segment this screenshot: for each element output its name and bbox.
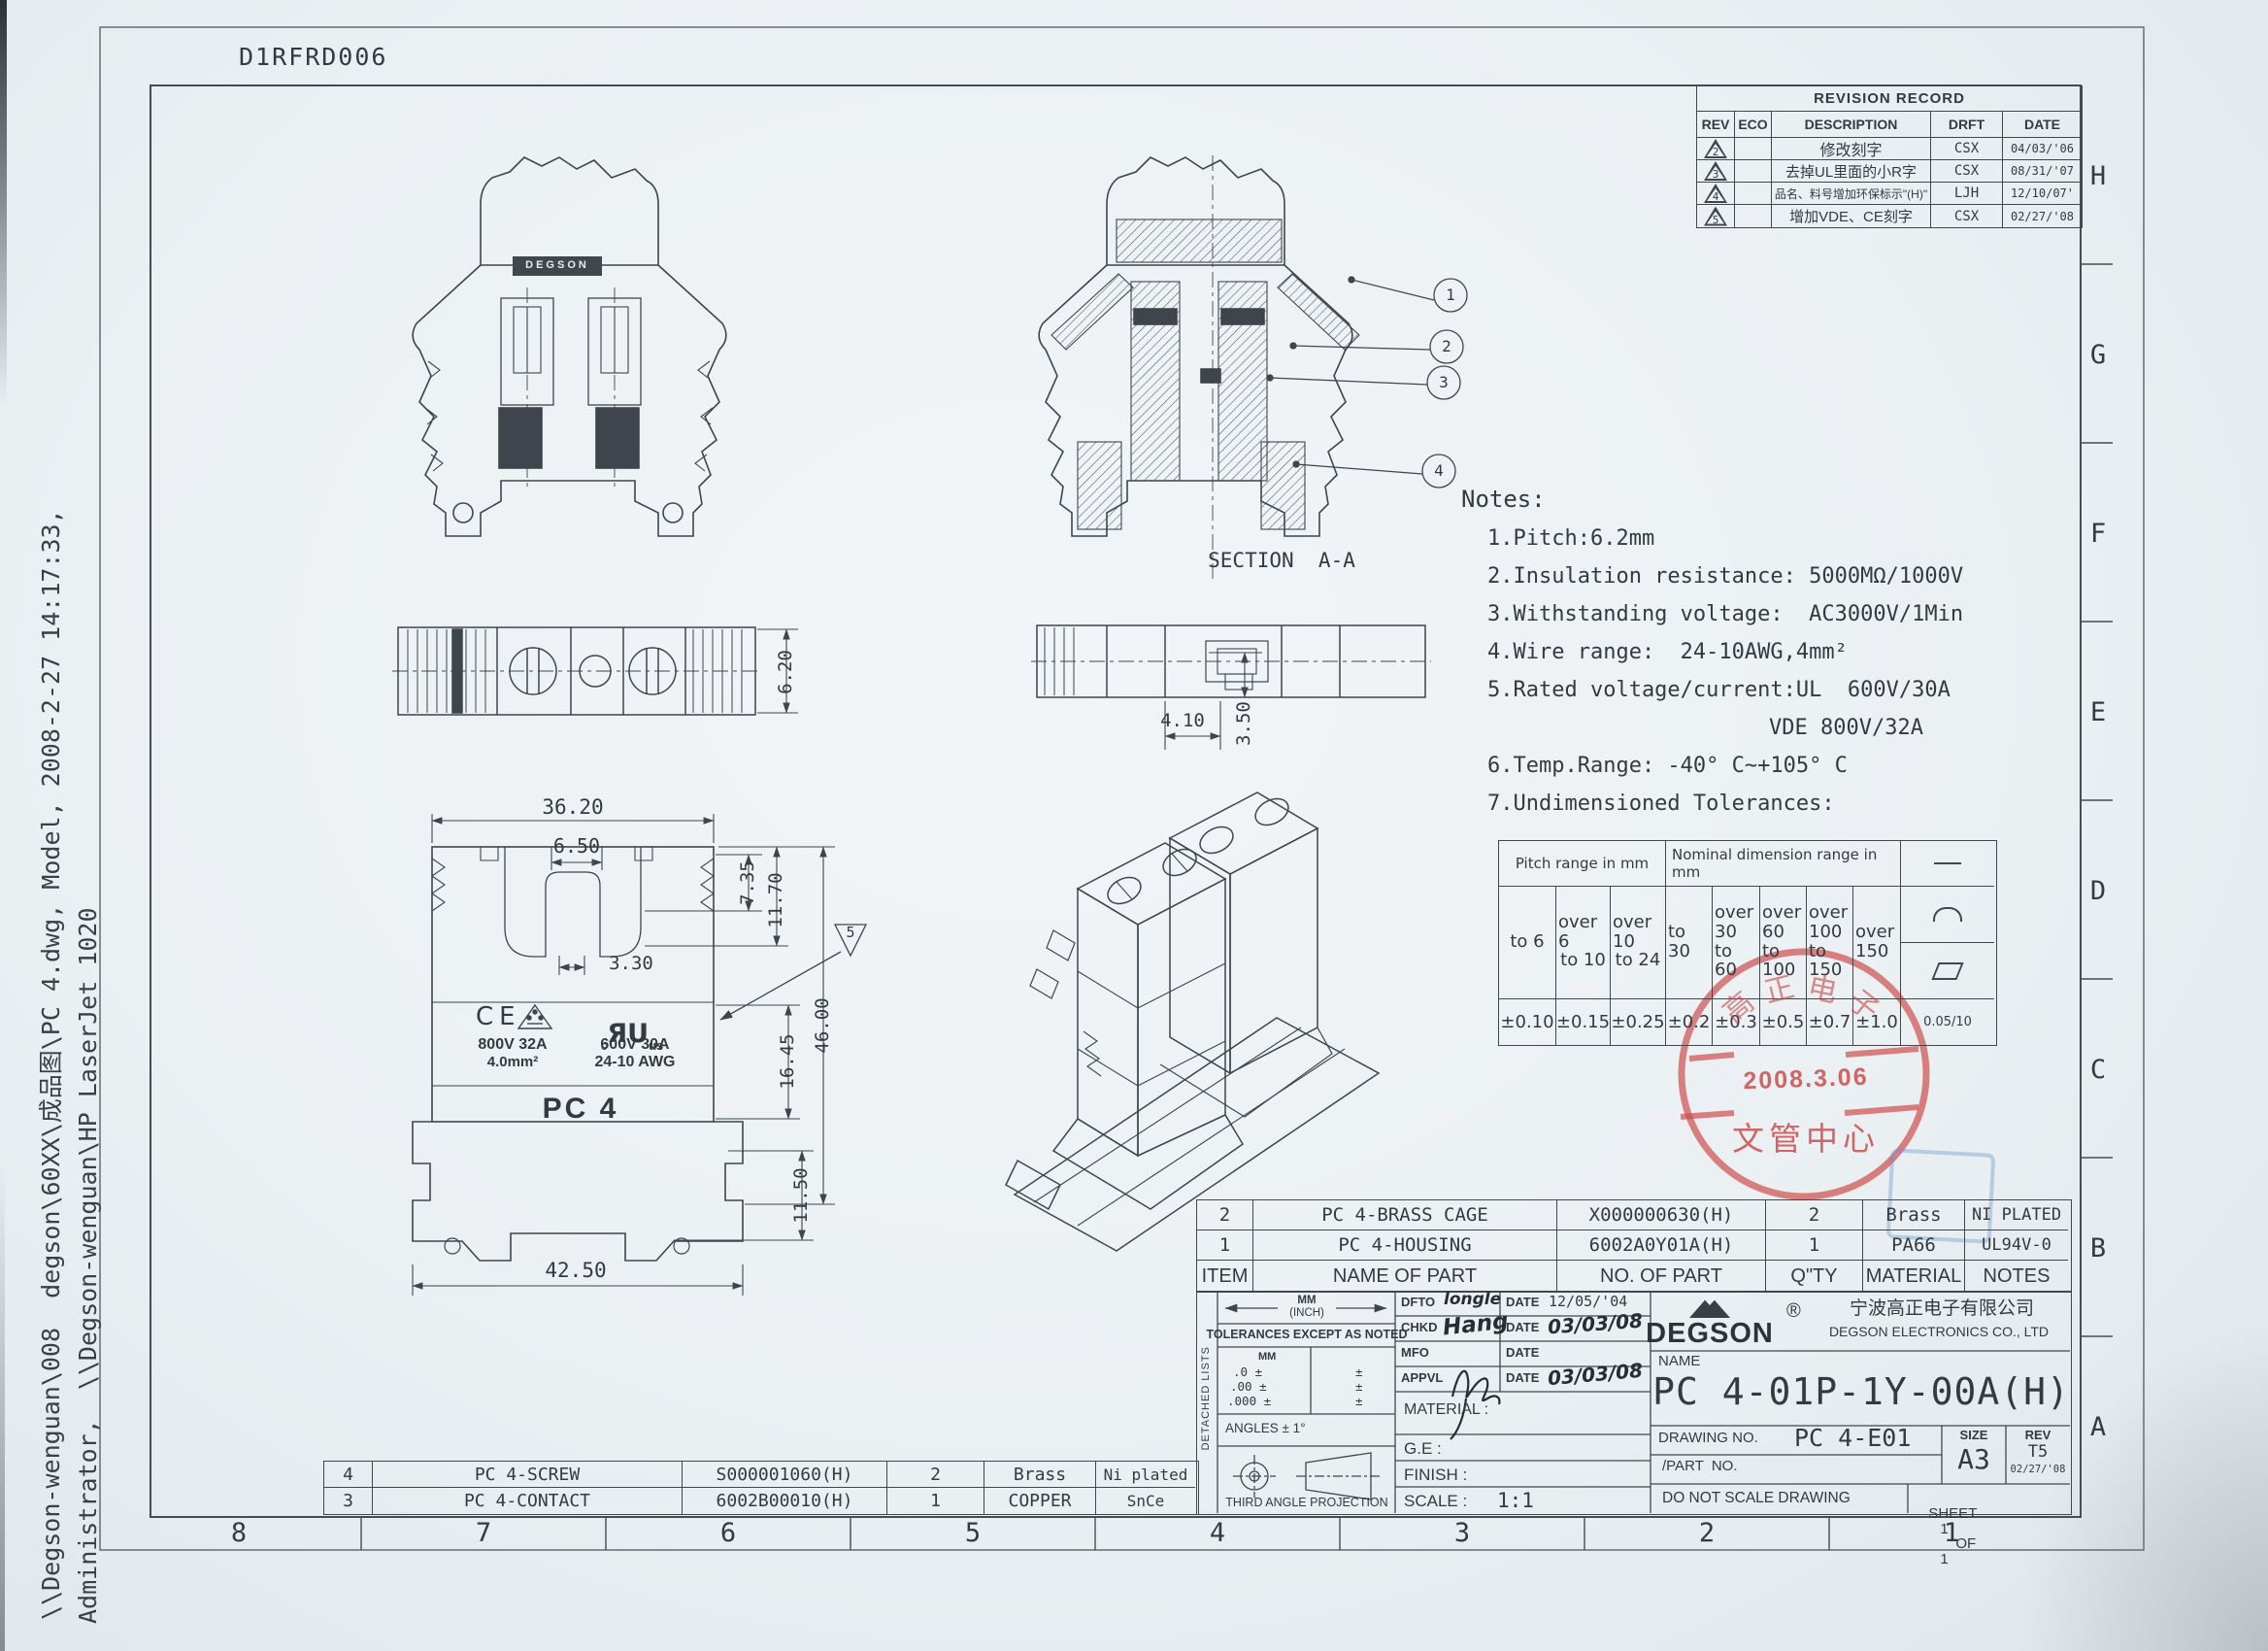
sheet-label: SHEET xyxy=(1928,1505,1977,1522)
note-line-vde: VDE 800V/32A xyxy=(1769,717,1923,739)
note-line: 4.Wire range: 24-10AWG,4mm² xyxy=(1487,641,1848,663)
nominal-range-header: Nominal dimension range in mm xyxy=(1666,841,1901,887)
dim-3-30: 3.30 xyxy=(600,954,662,975)
corner-fold-shadow xyxy=(2016,1321,2268,1651)
part-no-label: /PART NO. xyxy=(1662,1459,1738,1474)
revision-record-table: REVISION RECORD REV ECO DESCRIPTION DRFT… xyxy=(1696,85,2083,228)
scale-value: 1:1 xyxy=(1497,1490,1534,1511)
range-cell: to 6 xyxy=(1499,887,1556,999)
tol-pm: ± xyxy=(1355,1380,1363,1393)
dfto-label: DFTO xyxy=(1401,1296,1435,1309)
tol-pm: ± xyxy=(1355,1395,1363,1407)
range-cell: over 30to 60 xyxy=(1713,887,1760,999)
part-name: PC 4-HOUSING xyxy=(1253,1230,1557,1261)
zone-number: 2 xyxy=(1687,1518,1726,1549)
tolerance-value: ±0.10 xyxy=(1499,999,1556,1045)
part-notes: UL94V-0 xyxy=(1965,1230,2068,1261)
part-notes: Ni plated xyxy=(1096,1462,1195,1488)
part-qty: 2 xyxy=(887,1462,984,1488)
vde-mark-icon xyxy=(518,1005,551,1028)
part-notes: NI PLATED xyxy=(1965,1200,2068,1230)
eco-cell xyxy=(1735,183,1772,205)
no-scale-note: DO NOT SCALE DRAWING xyxy=(1662,1491,1851,1506)
eco-cell xyxy=(1735,205,1772,227)
scale-label: SCALE : xyxy=(1404,1493,1467,1510)
part-qty: 1 xyxy=(1766,1230,1863,1261)
note-line: 1.Pitch:6.2mm xyxy=(1487,527,1654,550)
callout-number: 1 xyxy=(1439,284,1462,307)
name-label: NAME xyxy=(1658,1354,1700,1369)
sheet-info: SHEET 1 OF 1 xyxy=(1920,1491,1977,1567)
part-material: Brass xyxy=(1863,1200,1965,1230)
rev-triangle: 4 xyxy=(1697,183,1735,205)
part-name: PC 4-SCREW xyxy=(373,1462,683,1488)
product-name: PC 4-01P-1Y-00A(H) xyxy=(1655,1373,2067,1412)
part-item: 1 xyxy=(1197,1230,1253,1261)
flatness-cell xyxy=(1901,943,1994,999)
zone-number: 6 xyxy=(709,1518,748,1549)
rev-triangle: 3 xyxy=(1697,160,1735,183)
qty-header: Q"TY xyxy=(1766,1261,1863,1292)
zone-letter: H xyxy=(2084,162,2113,191)
dim-11-70: 11.70 xyxy=(766,866,787,934)
isometric-view-drawing xyxy=(1006,792,1379,1251)
date-label: DATE xyxy=(1506,1346,1539,1360)
finish-label: FINISH : xyxy=(1404,1466,1467,1484)
date-col-header: DATE xyxy=(2003,112,2082,138)
mm-inch-label: MM(INCH) xyxy=(1278,1293,1336,1322)
parts-list-lower: 4 PC 4-SCREW S000001060(H) 2 Brass Ni pl… xyxy=(323,1461,1199,1515)
ul-rating-line2: 24-10 AWG xyxy=(579,1055,691,1071)
ul-rating-line1: 600V 30A xyxy=(584,1037,685,1054)
company-name-cn: 宁波高正电子有限公司 xyxy=(1825,1299,2058,1319)
stamp-center-text: 文管中心 xyxy=(1728,1123,1884,1157)
straightness-cell xyxy=(1901,841,1994,887)
revision-description: 去掉UL里面的小R字 xyxy=(1772,160,1931,183)
range-cell: to 30 xyxy=(1666,887,1713,999)
part-name: PC 4-BRASS CAGE xyxy=(1253,1200,1557,1230)
zone-number: 7 xyxy=(464,1518,503,1549)
revision-drafter: LJH xyxy=(1931,183,2003,205)
dim-36-20: 36.20 xyxy=(529,796,617,818)
rev-triangle: 2 xyxy=(1697,138,1735,160)
triangle-callout-number: 5 xyxy=(837,924,864,943)
revision-date: 02/27/'08 xyxy=(2003,205,2082,227)
range-cell: over 6to 10 xyxy=(1556,887,1611,999)
of-label: OF xyxy=(1955,1535,1976,1552)
degson-logo-icon xyxy=(1689,1295,1730,1318)
name-header: NAME OF PART xyxy=(1253,1261,1557,1292)
part-number: S000001060(H) xyxy=(683,1462,887,1488)
revision-description: 修改刻字 xyxy=(1772,138,1931,160)
arc-icon xyxy=(1933,907,1962,922)
registered-mark: ® xyxy=(1786,1301,1801,1322)
part-qty: 1 xyxy=(887,1488,984,1514)
dim-4-10: 4.10 xyxy=(1151,711,1214,732)
part-name: PC 4-CONTACT xyxy=(373,1488,683,1514)
note-line: 3.Withstanding voltage: AC3000V/1Min xyxy=(1487,603,1963,625)
part-notes: SnCe xyxy=(1096,1488,1195,1514)
tol-row: .00 ± xyxy=(1230,1380,1267,1393)
document-id: D1RFRD006 xyxy=(239,45,387,70)
zone-letter: F xyxy=(2084,520,2113,549)
tolerances-note: TOLERANCES EXCEPT AS NOTED xyxy=(1219,1329,1394,1341)
revision-triangle-icon: 5 xyxy=(1704,207,1727,226)
tol-pm: ± xyxy=(1355,1365,1363,1378)
callout-number: 3 xyxy=(1432,371,1455,394)
description-col-header: DESCRIPTION xyxy=(1772,112,1931,138)
chkd-label: CHKD xyxy=(1401,1321,1438,1334)
part-material: COPPER xyxy=(984,1488,1096,1514)
zone-number: 8 xyxy=(219,1518,258,1549)
detached-lists-label: DETACHED LISTS xyxy=(1201,1326,1213,1471)
top-view-left-drawing xyxy=(392,627,761,715)
callout-number: 2 xyxy=(1435,335,1458,358)
mm-small-label: MM xyxy=(1258,1352,1276,1364)
note-line: 6.Temp.Range: -40° C~+105° C xyxy=(1487,755,1848,777)
date-label: DATE xyxy=(1506,1296,1539,1309)
zone-letter: G xyxy=(2084,341,2113,370)
number-header: NO. OF PART xyxy=(1557,1261,1766,1292)
item-header: ITEM xyxy=(1197,1261,1253,1292)
tol-row: .0 ± xyxy=(1233,1365,1262,1378)
part-material: Brass xyxy=(984,1462,1096,1488)
angles-tolerance: ANGLES ± 1° xyxy=(1225,1422,1306,1435)
tolerance-value: ±0.5 xyxy=(1760,999,1807,1045)
eco-cell xyxy=(1735,160,1772,183)
revision-description: 增加VDE、CE刻字 xyxy=(1772,205,1931,227)
zone-number: 3 xyxy=(1443,1518,1482,1549)
dimension-lines xyxy=(413,629,1262,1296)
dim-16-45: 16.45 xyxy=(778,1028,799,1095)
part-number: 6002A0Y01A(H) xyxy=(1557,1230,1766,1261)
callout-number: 4 xyxy=(1427,459,1451,483)
date-label: DATE xyxy=(1506,1321,1539,1334)
tolerance-value: ±0.2 xyxy=(1666,999,1713,1045)
parallelogram-icon xyxy=(1931,962,1963,980)
stamp-date: 2008.3.06 xyxy=(1738,1064,1875,1095)
dim-3-50: 3.50 xyxy=(1234,690,1255,758)
part-item: 3 xyxy=(324,1488,373,1514)
part-number: X000000630(H) xyxy=(1557,1200,1766,1230)
eco-col-header: ECO xyxy=(1735,112,1772,138)
revision-drafter: CSX xyxy=(1931,160,2003,183)
tolerance-value: ±0.25 xyxy=(1611,999,1666,1045)
material-label: MATERIAL : xyxy=(1404,1402,1488,1419)
rev-triangle: 5 xyxy=(1697,205,1735,227)
zone-letter: E xyxy=(2084,698,2113,727)
zone-number: 4 xyxy=(1198,1518,1237,1549)
tolerance-value: ±0.15 xyxy=(1556,999,1611,1045)
zone-number: 5 xyxy=(953,1518,992,1549)
sheet-no: 1 xyxy=(1940,1521,1948,1537)
note-line: 7.Undimensioned Tolerances: xyxy=(1487,792,1835,815)
drawing-no-value: PC 4-E01 xyxy=(1794,1426,1911,1451)
top-view-middle-drawing xyxy=(1031,625,1431,697)
dfto-date: 12/05/'04 xyxy=(1549,1295,1627,1310)
revision-drafter: CSX xyxy=(1931,138,2003,160)
arc-cell xyxy=(1901,887,1994,943)
notes-title: Notes: xyxy=(1461,488,1546,512)
revision-date: 04/03/'06 xyxy=(2003,138,2082,160)
part-qty: 2 xyxy=(1766,1200,1863,1230)
mfo-label: MFO xyxy=(1401,1346,1429,1360)
revision-title: REVISION RECORD xyxy=(1697,86,2082,112)
ce-mark: CE xyxy=(476,1004,521,1030)
parts-list-upper: 2 PC 4-BRASS CAGE X000000630(H) 2 Brass … xyxy=(1196,1199,2072,1293)
revision-date: 08/31/'07 xyxy=(2003,160,2082,183)
plot-path-line1: \\Degson-wenguan\008 degson\60XX\成品图\PC … xyxy=(39,509,64,1620)
plot-path-line2: Administrator, \\Degson-wenguan\HP Laser… xyxy=(76,907,101,1624)
dim-42-50: 42.50 xyxy=(532,1260,619,1281)
dim-6-20: 6.20 xyxy=(776,638,797,706)
degson-emboss: DEGSON xyxy=(513,256,602,276)
revision-triangle-icon: 2 xyxy=(1704,139,1727,158)
part-number: 6002B00010(H) xyxy=(683,1488,887,1514)
callout-leaders xyxy=(720,277,1467,1020)
projection-label: THIRD ANGLE PROJECTION xyxy=(1219,1497,1394,1509)
straightness-icon xyxy=(1934,862,1961,864)
of-no: 1 xyxy=(1940,1551,1948,1567)
range-cell: over 10to 24 xyxy=(1611,887,1666,999)
note-line: 5.Rated voltage/current:UL 600V/30A xyxy=(1487,679,1951,701)
section-view-drawing xyxy=(1039,155,1359,583)
ge-label: G.E : xyxy=(1404,1440,1442,1458)
material-header: MATERIAL xyxy=(1863,1261,1965,1292)
dimensioned-view-drawing xyxy=(413,847,743,1261)
revision-drafter: CSX xyxy=(1931,205,2003,227)
pitch-range-header: Pitch range in mm xyxy=(1499,841,1666,887)
rev-col-header: REV xyxy=(1697,112,1735,138)
drawing-no-label: DRAWING NO. xyxy=(1658,1431,1758,1446)
section-label: SECTION A-A xyxy=(1189,550,1374,571)
revision-date: 12/10/07' xyxy=(2003,183,2082,205)
dim-46-00: 46.00 xyxy=(813,992,834,1060)
size-value: A3 xyxy=(1942,1445,2006,1473)
stamp-arc-char: 电 xyxy=(1805,972,1840,1008)
notes-header: NOTES xyxy=(1965,1261,2068,1292)
dim-7-35: 7.35 xyxy=(738,849,759,917)
scan-edge-shadow xyxy=(0,1165,5,1651)
revision-description: 品名、料号增加环保标示"(H)" xyxy=(1772,183,1931,205)
drft-col-header: DRFT xyxy=(1931,112,2003,138)
size-label: SIZE xyxy=(1942,1429,2006,1442)
dim-11-50: 11.50 xyxy=(791,1162,813,1230)
flatness-value: 0.05/10 xyxy=(1901,999,1994,1045)
dim-6-50: 6.50 xyxy=(536,835,617,857)
zone-letter: C xyxy=(2084,1056,2113,1085)
vde-rating-line1: 800V 32A xyxy=(464,1037,561,1054)
note-line: 2.Insulation resistance: 5000MΩ/1000V xyxy=(1487,565,1963,588)
eco-cell xyxy=(1735,138,1772,160)
range-cell: over 150 xyxy=(1853,887,1901,999)
brand-name: DEGSON xyxy=(1647,1319,1773,1348)
vde-rating-line2: 4.0mm² xyxy=(470,1055,555,1070)
date-label: DATE xyxy=(1506,1371,1539,1385)
part-material: PA66 xyxy=(1863,1230,1965,1261)
zone-letter: D xyxy=(2084,877,2113,906)
revision-triangle-icon: 3 xyxy=(1704,161,1727,181)
tol-row: .000 ± xyxy=(1227,1395,1271,1407)
appvl-label: APPVL xyxy=(1401,1371,1443,1385)
zone-letter: B xyxy=(2084,1234,2113,1264)
scan-edge-shadow xyxy=(0,0,7,408)
part-item: 2 xyxy=(1197,1200,1253,1230)
dfto-value: longle xyxy=(1444,1292,1501,1309)
product-label: PC 4 xyxy=(532,1094,629,1125)
part-item: 4 xyxy=(324,1462,373,1488)
revision-triangle-icon: 4 xyxy=(1704,184,1727,203)
front-view-drawing xyxy=(413,157,726,536)
